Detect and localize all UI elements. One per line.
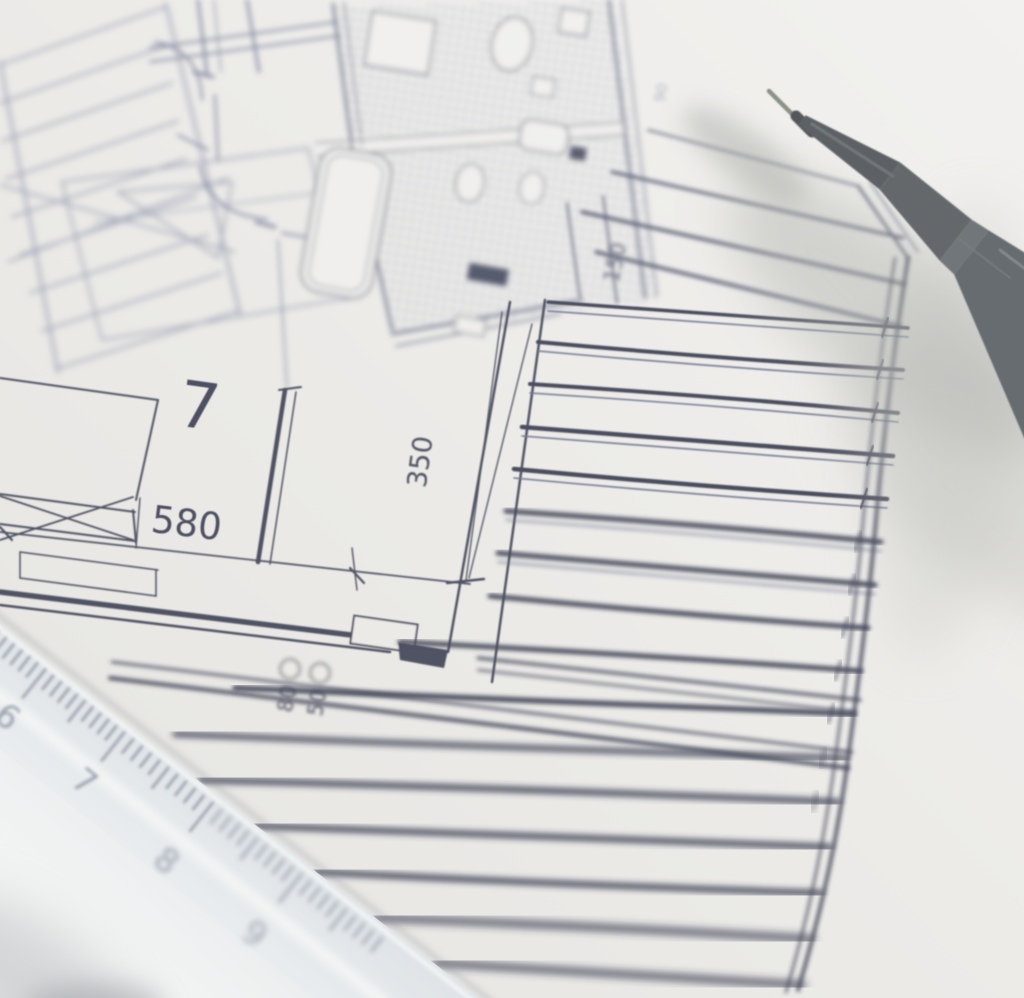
blueprint-photo: 150 90 [0, 0, 1024, 998]
lighting-topright [0, 0, 1024, 998]
photo-canvas: 150 90 [0, 0, 1024, 998]
